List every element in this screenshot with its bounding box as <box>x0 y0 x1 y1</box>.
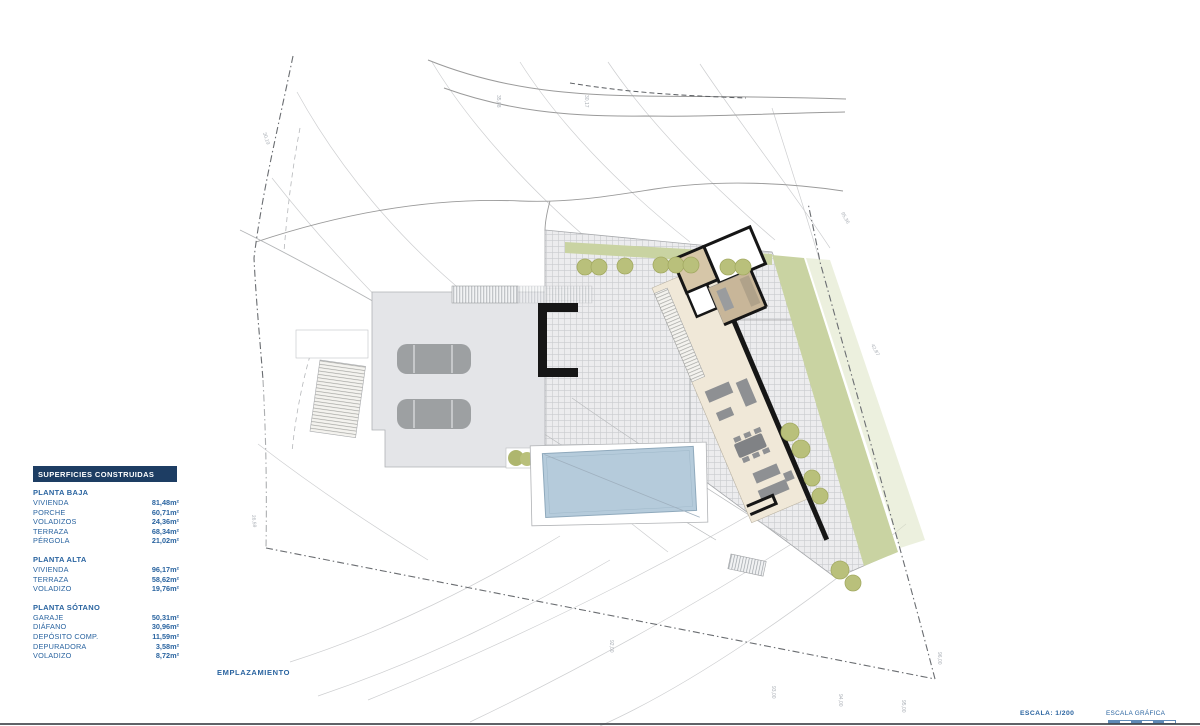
surface-value: 68,34m² <box>152 527 179 537</box>
dimension-label: 96,00 <box>936 652 942 665</box>
surfaces-table-body: PLANTA BAJAVIVIENDA81,48m²PORCHE60,71m²V… <box>33 488 179 661</box>
surface-row: DEPÓSITO COMP.11,59m² <box>33 632 179 642</box>
surface-label: PORCHE <box>33 508 65 518</box>
dimension-label: 94,00 <box>837 694 843 707</box>
dimension-label: 30,17 <box>583 95 589 108</box>
surface-row: TERRAZA68,34m² <box>33 527 179 537</box>
surface-row: PORCHE60,71m² <box>33 508 179 518</box>
surface-value: 19,76m² <box>152 584 179 594</box>
car-icon <box>397 399 471 429</box>
pool <box>530 442 708 526</box>
surfaces-panel: SUPERFICIES CONSTRUIDAS PLANTA BAJAVIVIE… <box>33 466 179 661</box>
dimension-label: 30,19 <box>261 132 271 146</box>
surface-value: 58,62m² <box>152 575 179 585</box>
surface-row: VIVIENDA96,17m² <box>33 565 179 575</box>
dimension-label: 26,59 <box>250 515 257 528</box>
surface-label: GARAJE <box>33 613 63 623</box>
section-title: PLANTA SÓTANO <box>33 603 179 613</box>
surface-row: VOLADIZOS24,36m² <box>33 517 179 527</box>
section-title: PLANTA ALTA <box>33 555 179 565</box>
entry-platform <box>296 330 368 358</box>
dimension-label: 95,00 <box>900 700 906 713</box>
surface-label: VIVIENDA <box>33 565 69 575</box>
surface-label: VOLADIZOS <box>33 517 77 527</box>
entry-steps <box>452 286 592 303</box>
surface-row: TERRAZA58,62m² <box>33 575 179 585</box>
dimension-label: 92,00 <box>608 640 614 653</box>
section-title: PLANTA BAJA <box>33 488 179 498</box>
deck-steps <box>728 554 766 576</box>
graphic-scale-label: ESCALA GRÁFICA <box>1106 710 1165 717</box>
surface-value: 96,17m² <box>152 565 179 575</box>
plan-title: EMPLAZAMIENTO <box>217 668 290 677</box>
setback-lines <box>284 128 318 452</box>
surface-label: DEPURADORA <box>33 642 87 652</box>
dimension-label: 95,36 <box>839 211 850 225</box>
surface-row: DEPURADORA3,58m² <box>33 642 179 652</box>
surface-value: 30,96m² <box>152 622 179 632</box>
surface-label: PÉRGOLA <box>33 536 70 546</box>
surface-value: 60,71m² <box>152 508 179 518</box>
site-plan-drawing: 30,1926,5935,0830,1795,3642,8792,0093,00… <box>0 0 1200 726</box>
surface-row: VOLADIZO8,72m² <box>33 651 179 661</box>
surface-label: VOLADIZO <box>33 584 72 594</box>
surface-label: VIVIENDA <box>33 498 69 508</box>
dimension-label: 42,87 <box>869 343 880 357</box>
surface-row: VOLADIZO19,76m² <box>33 584 179 594</box>
exterior-stairs <box>310 360 366 438</box>
surface-label: DIÁFANO <box>33 622 66 632</box>
dimension-label: 35,08 <box>495 95 501 108</box>
surface-label: VOLADIZO <box>33 651 72 661</box>
surface-value: 11,59m² <box>152 632 179 642</box>
surface-value: 81,48m² <box>152 498 179 508</box>
surface-row: GARAJE50,31m² <box>33 613 179 623</box>
car-icon <box>397 344 471 374</box>
scale-label: ESCALA: 1/200 <box>1020 710 1074 717</box>
surface-row: PÉRGOLA21,02m² <box>33 536 179 546</box>
surface-value: 21,02m² <box>152 536 179 546</box>
dimension-label: 93,00 <box>770 686 776 699</box>
surface-label: DEPÓSITO COMP. <box>33 632 98 642</box>
surfaces-panel-header: SUPERFICIES CONSTRUIDAS <box>33 466 177 482</box>
surface-label: TERRAZA <box>33 527 68 537</box>
surface-value: 50,31m² <box>152 613 179 623</box>
surface-value: 8,72m² <box>156 651 179 661</box>
surface-row: DIÁFANO30,96m² <box>33 622 179 632</box>
surface-value: 3,58m² <box>156 642 179 652</box>
surface-value: 24,36m² <box>152 517 179 527</box>
surface-label: TERRAZA <box>33 575 68 585</box>
surface-row: VIVIENDA81,48m² <box>33 498 179 508</box>
window-bottom-edge <box>0 723 1200 725</box>
